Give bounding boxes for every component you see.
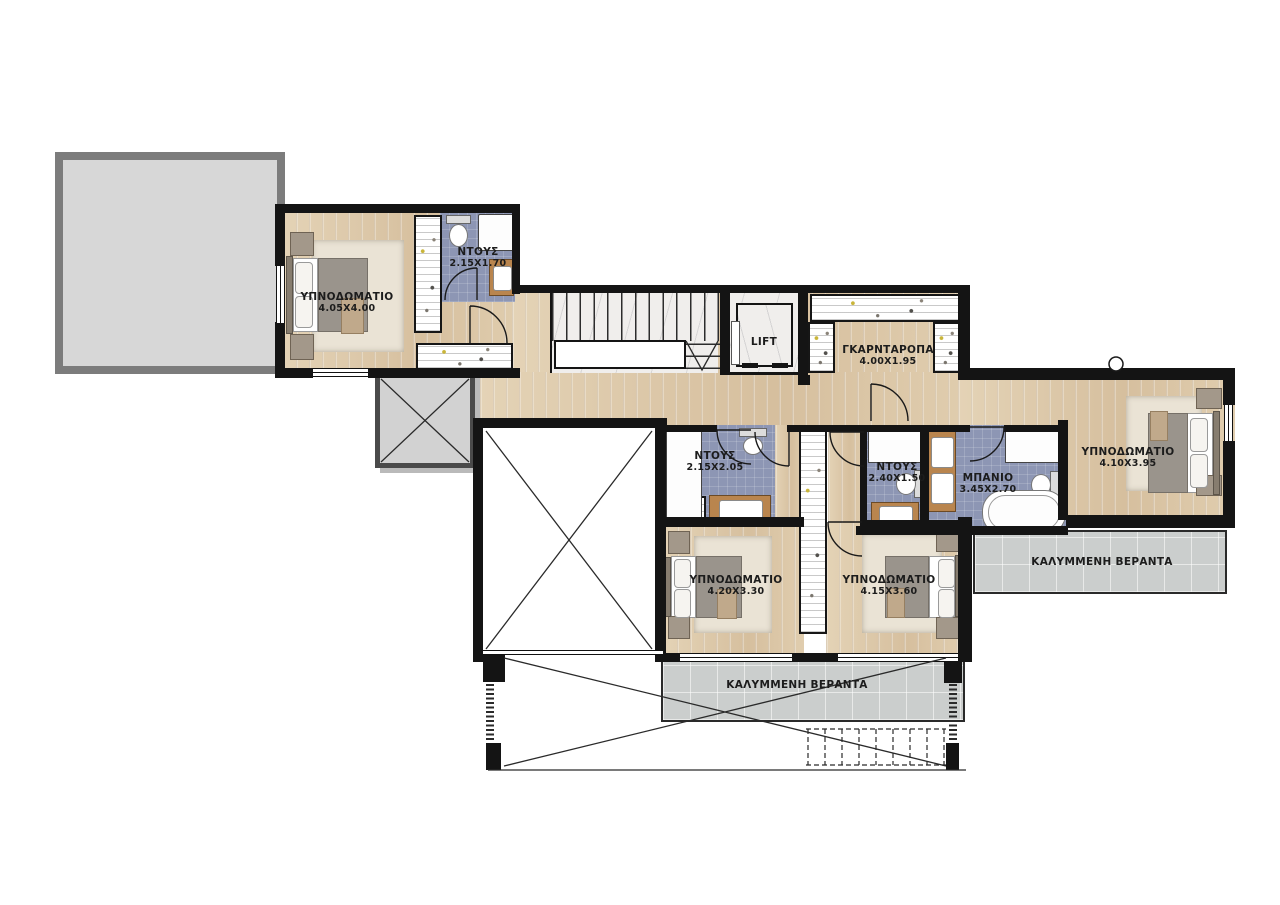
room-label-bedroom-3: ΥΠΝΟΔΩΜΑΤΙΟ 4.20X3.30 <box>689 574 782 597</box>
nightstand <box>290 334 314 360</box>
wall <box>275 368 313 378</box>
wall <box>730 372 798 375</box>
wall <box>473 425 483 662</box>
lift-door-sill <box>742 363 758 368</box>
wall <box>512 285 968 293</box>
wardrobe-closet-left <box>808 322 835 373</box>
column <box>946 743 959 770</box>
wall <box>787 425 922 432</box>
room-label-veranda-bottom: ΚΑΛΥΜΜΕΝΗ ΒΕΡΑΝΤΑ <box>726 679 867 691</box>
wall <box>720 291 730 375</box>
staircase <box>550 293 718 373</box>
nightstand <box>290 232 314 256</box>
toilet <box>743 437 763 455</box>
bed-pillow <box>1190 418 1208 452</box>
wardrobe-closet-right <box>933 322 960 373</box>
room-label-shower-1: ΝΤΟΥΣ 2.15X1.70 <box>450 246 507 269</box>
bed-pillow <box>674 559 691 588</box>
room-label-lift: LIFT <box>751 336 777 348</box>
window <box>276 266 285 323</box>
column <box>486 743 501 770</box>
shower-tray <box>1005 428 1062 463</box>
bed-pillow <box>295 262 313 294</box>
stair-winders <box>685 333 720 369</box>
room-label-bathroom: ΜΠΑΝΙΟ 3.45X2.70 <box>960 472 1017 495</box>
wall <box>798 375 810 385</box>
closet <box>414 215 442 333</box>
wall <box>860 425 867 529</box>
wall <box>1066 515 1235 528</box>
room-label-shower-2: ΝΤΟΥΣ 2.15X2.05 <box>687 450 744 473</box>
wall <box>958 368 1235 380</box>
lift-shaft <box>730 291 798 373</box>
lift-car <box>736 303 793 367</box>
window <box>1224 405 1233 441</box>
lift-rail <box>731 321 740 365</box>
vestibule-b-floor <box>828 425 864 523</box>
room-label-shower-3: ΝΤΟΥΣ 2.40X1.50 <box>869 461 926 484</box>
closet <box>416 343 513 370</box>
room-label-wardrobe: ΓΚΑΡΝΤΑΡΟΠΑ 4.00X1.95 <box>842 344 934 367</box>
wall <box>512 204 520 294</box>
roof-terrace <box>55 152 285 374</box>
wall <box>368 368 520 378</box>
wall <box>275 204 285 266</box>
wall <box>1223 372 1235 405</box>
room-label-bedroom-4: ΥΠΝΟΔΩΜΑΤΙΟ 4.15X3.60 <box>842 574 935 597</box>
bed-pillow <box>1190 454 1208 488</box>
wall <box>473 418 667 428</box>
wall <box>655 425 666 662</box>
nightstand <box>1196 388 1222 409</box>
room-label-bedroom-2: ΥΠΝΟΔΩΜΑΤΙΟ 4.10X3.95 <box>1081 446 1174 469</box>
closet <box>799 428 827 634</box>
wall <box>656 517 804 527</box>
wardrobe-closet-top <box>810 294 960 322</box>
wall <box>958 517 972 662</box>
toilet <box>446 215 471 224</box>
stair-landing <box>554 340 686 369</box>
bed-pillow <box>938 589 955 618</box>
wall <box>792 653 838 662</box>
window <box>838 653 958 662</box>
bed-headboard <box>1213 411 1220 495</box>
bathtub-inner <box>988 495 1060 530</box>
wall <box>283 204 520 213</box>
nightstand <box>668 531 690 554</box>
sink-basin <box>931 437 954 468</box>
floor-plan: ΥΠΝΟΔΩΜΑΤΙΟ 4.05X4.00 ΝΤΟΥΣ 2.15X1.70 LI… <box>0 0 1280 905</box>
lift-door-sill <box>772 363 788 368</box>
veranda-bottom-floor <box>661 660 965 722</box>
void-balustrade <box>483 650 663 655</box>
shower-tray <box>666 428 702 523</box>
nightstand <box>668 616 690 639</box>
wall <box>958 285 970 380</box>
wall <box>1223 441 1235 517</box>
room-label-veranda-right: ΚΑΛΥΜΜΕΝΗ ΒΕΡΑΝΤΑ <box>1031 556 1172 568</box>
double-height-void <box>483 428 655 654</box>
wall <box>798 291 808 375</box>
shower-tray <box>868 427 921 463</box>
bed-pillow <box>938 559 955 588</box>
window <box>313 368 368 377</box>
bed-headboard <box>286 256 293 334</box>
bed-pillow <box>674 589 691 618</box>
toilet <box>449 224 468 247</box>
toilet <box>739 428 767 437</box>
wall <box>922 425 970 432</box>
bed-throw <box>1150 411 1168 441</box>
wall <box>1058 420 1068 520</box>
wall <box>1004 425 1060 432</box>
window <box>680 653 792 662</box>
column <box>483 653 505 682</box>
sink-basin <box>931 473 954 504</box>
sink-basin <box>493 266 512 291</box>
pergola-louvres <box>806 729 946 765</box>
skylight-void <box>375 373 475 468</box>
room-label-bedroom-1: ΥΠΝΟΔΩΜΑΤΙΟ 4.05X4.00 <box>300 291 393 314</box>
